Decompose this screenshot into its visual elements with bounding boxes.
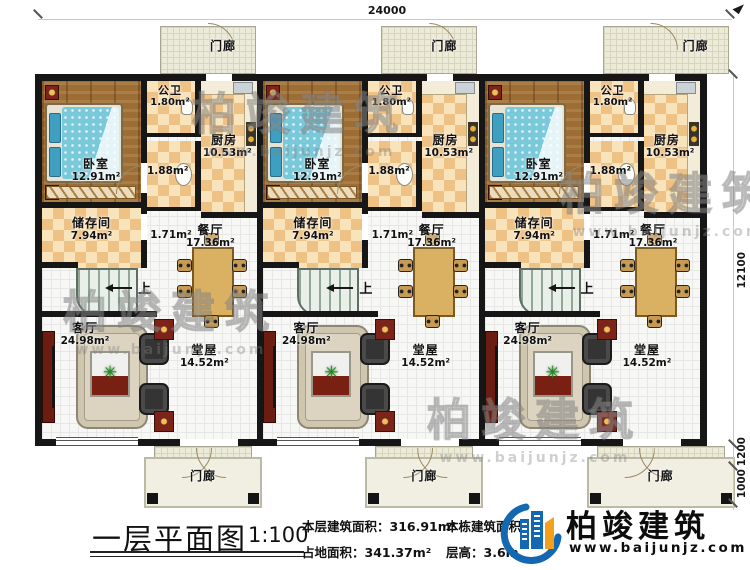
room-label-storage: 储存间 7.94m² xyxy=(485,216,584,243)
dining-table xyxy=(413,247,455,317)
stat-label: 层高： xyxy=(446,545,484,560)
kitchen-door-gap xyxy=(427,74,453,81)
nightstand xyxy=(45,85,59,100)
storage-room: 储存间 7.94m² xyxy=(485,208,590,268)
dining-chair xyxy=(232,285,247,298)
storage-area: 7.94m² xyxy=(485,230,584,243)
room-label-bedroom: 卧室 12.91m² xyxy=(501,157,577,184)
house-unit: 门廊 门廊 卧室 12. xyxy=(485,81,700,439)
dining-chair xyxy=(425,315,440,328)
hall-name: 堂屋 xyxy=(165,343,243,357)
main-building: 门廊 门廊 卧室 12. xyxy=(35,74,707,446)
plant-icon: ✳ xyxy=(313,363,349,383)
room-label-dining: 餐厅 17.36m² xyxy=(614,223,692,250)
room-label-kitchen: 厨房 10.53m² xyxy=(424,133,466,160)
kitchen-door-gap xyxy=(206,74,232,81)
company-logo: 柏竣建筑 www.baijunjz.com xyxy=(496,499,750,567)
stairs-up-label: 上 xyxy=(581,278,594,297)
bottom-porch-name: 门廊 xyxy=(598,469,724,483)
porch-column xyxy=(469,493,480,504)
kitchen-name: 厨房 xyxy=(424,133,466,147)
top-porch-name: 门廊 xyxy=(193,39,253,53)
kitchen-door-gap xyxy=(649,74,675,81)
hall-area: 14.52m² xyxy=(608,357,686,370)
kitchen-name: 厨房 xyxy=(203,133,245,147)
coffee-table: ✳ xyxy=(311,351,351,397)
plant-icon: ✳ xyxy=(535,363,571,383)
end-table xyxy=(375,411,395,432)
dining-area: 17.36m² xyxy=(171,237,249,250)
end-table xyxy=(375,319,395,340)
room-label-toilet: 公卫 1.80m² xyxy=(590,84,636,109)
living-area: 24.98m² xyxy=(273,335,339,348)
living-area: 24.98m² xyxy=(495,335,561,348)
living-name: 客厅 xyxy=(52,321,118,335)
stat-footprint-area: 占地面积：341.37m² xyxy=(302,540,456,566)
dining-chair xyxy=(177,259,192,272)
end-table xyxy=(154,319,174,340)
units-row: 门廊 门廊 卧室 12. xyxy=(42,81,700,439)
dining-chair xyxy=(398,259,413,272)
house-unit: 门廊 门廊 卧室 12. xyxy=(42,81,257,439)
wash-area: 1.88m² xyxy=(590,165,630,178)
porch-column xyxy=(248,493,259,504)
room-label-dining: 餐厅 17.36m² xyxy=(393,223,471,250)
room-label-storage: 储存间 7.94m² xyxy=(263,216,362,243)
wall-segment xyxy=(485,311,600,317)
stairs-up-label: 上 xyxy=(359,278,372,297)
toilet-area: 1.80m² xyxy=(368,97,414,109)
room-label-wash: 1.88m² xyxy=(147,165,187,178)
dining-chair xyxy=(620,285,635,298)
toilet-name: 公卫 xyxy=(590,84,636,97)
dining-table xyxy=(192,247,234,317)
front-door-gap xyxy=(401,439,459,446)
hall-name: 堂屋 xyxy=(608,343,686,357)
logo-url: www.baijunjz.com xyxy=(569,540,747,556)
bedroom-area: 12.91m² xyxy=(501,171,577,184)
room-label-living: 客厅 24.98m² xyxy=(495,321,561,348)
bottom-porch-name: 门廊 xyxy=(376,469,472,483)
top-porch-name: 门廊 xyxy=(666,39,726,53)
kitchen-sink xyxy=(676,82,696,94)
logo-building-icon xyxy=(496,503,564,565)
kitchen-area: 10.53m² xyxy=(203,147,245,160)
bottom-porch-name: 门廊 xyxy=(155,469,251,483)
end-table xyxy=(597,411,617,432)
dining-chair xyxy=(177,285,192,298)
toilet-room: 公卫 1.80m² xyxy=(368,81,422,137)
end-table xyxy=(154,411,174,432)
nightstand xyxy=(488,85,502,100)
room-label-kitchen: 厨房 10.53m² xyxy=(646,133,688,160)
room-label-bottom-porch: 门廊 xyxy=(155,469,251,483)
storage-room: 储存间 7.94m² xyxy=(42,208,147,268)
front-door-gap xyxy=(623,439,681,446)
wash-area: 1.88m² xyxy=(147,165,187,178)
living-area: 24.98m² xyxy=(52,335,118,348)
toilet-name: 公卫 xyxy=(368,84,414,97)
kitchen-name: 厨房 xyxy=(646,133,688,147)
kitchen-counter xyxy=(201,81,257,95)
pillow xyxy=(270,113,282,143)
kitchen-counter xyxy=(422,81,478,95)
stat-value: 341.37m² xyxy=(365,545,432,560)
top-porch: 门廊 xyxy=(603,26,729,74)
room-label-toilet: 公卫 1.80m² xyxy=(147,84,193,109)
stairs-direction-arrow xyxy=(333,287,353,289)
room-label-wash: 1.88m² xyxy=(368,165,408,178)
stairs xyxy=(519,268,581,316)
dining-name: 餐厅 xyxy=(393,223,471,237)
wall-segment xyxy=(263,262,299,268)
living-window xyxy=(277,437,359,446)
kitchen-area: 10.53m² xyxy=(646,147,688,160)
wall-segment xyxy=(485,262,521,268)
toilet-room: 公卫 1.80m² xyxy=(147,81,201,137)
living-window xyxy=(499,437,581,446)
pillow xyxy=(492,113,504,143)
stair-zone: 上 xyxy=(263,268,378,317)
stat-label: 占地面积： xyxy=(302,545,365,560)
stairs-up-label: 上 xyxy=(138,278,151,297)
dining-name: 餐厅 xyxy=(614,223,692,237)
room-label-hall: 堂屋 14.52m² xyxy=(608,343,686,370)
living-name: 客厅 xyxy=(273,321,339,335)
tv-screen xyxy=(52,346,55,408)
room-label-bottom-porch: 门廊 xyxy=(598,469,724,483)
dining-chair xyxy=(232,259,247,272)
nightstand xyxy=(266,85,280,100)
stove xyxy=(468,122,478,146)
storage-area: 7.94m² xyxy=(42,230,141,243)
kitchen-sink xyxy=(233,82,253,94)
hall-area: 14.52m² xyxy=(165,357,243,370)
stats-column-1: 本层建筑面积：316.91m² 占地面积：341.37m² xyxy=(302,514,456,566)
coffee-table: ✳ xyxy=(533,351,573,397)
kitchen: 厨房 10.53m² xyxy=(201,81,257,218)
room-label-hall: 堂屋 14.52m² xyxy=(165,343,243,370)
floor-plan-image: 24000 12100 1200 1000 门廊 门廊 xyxy=(0,0,750,570)
living-window xyxy=(56,437,138,446)
room-label-toilet: 公卫 1.80m² xyxy=(368,84,414,109)
wash-room: 1.88m² xyxy=(147,141,201,211)
stove xyxy=(246,122,256,146)
bedroom-area: 12.91m² xyxy=(58,171,134,184)
bottom-porch: 门廊 xyxy=(597,446,725,496)
room-label-hall: 堂屋 14.52m² xyxy=(387,343,465,370)
dining-chair xyxy=(647,315,662,328)
top-dimension-line xyxy=(38,19,732,20)
dining-chair xyxy=(675,259,690,272)
wall-segment xyxy=(42,311,157,317)
stat-label: 本层建筑面积： xyxy=(302,519,390,534)
wash-area: 1.88m² xyxy=(368,165,408,178)
storage-name: 储存间 xyxy=(485,216,584,230)
storage-room: 储存间 7.94m² xyxy=(263,208,368,268)
room-label-storage: 储存间 7.94m² xyxy=(42,216,141,243)
toilet-room: 公卫 1.80m² xyxy=(590,81,644,137)
wall-segment xyxy=(263,311,378,317)
plan-scale: 1:100 xyxy=(248,523,309,547)
bottom-porch: 门廊 xyxy=(154,446,252,496)
dining-table xyxy=(635,247,677,317)
toilet-name: 公卫 xyxy=(147,84,193,97)
pillow xyxy=(49,113,61,143)
dining-chair xyxy=(204,315,219,328)
top-porch: 门廊 xyxy=(381,26,477,74)
porch-column xyxy=(368,493,379,504)
stair-zone: 上 xyxy=(42,268,157,317)
stair-zone: 上 xyxy=(485,268,600,317)
dining-name: 餐厅 xyxy=(171,223,249,237)
room-label-living: 客厅 24.98m² xyxy=(273,321,339,348)
dining-chair xyxy=(620,259,635,272)
stairs xyxy=(76,268,138,316)
dining-area: 17.36m² xyxy=(393,237,471,250)
stairs-direction-arrow xyxy=(555,287,575,289)
dining-area: 17.36m² xyxy=(614,237,692,250)
room-label-wash: 1.88m² xyxy=(590,165,630,178)
room-label-bedroom: 卧室 12.91m² xyxy=(279,157,355,184)
bedroom-name: 卧室 xyxy=(58,157,134,171)
room-label-bedroom: 卧室 12.91m² xyxy=(58,157,134,184)
coffee-table: ✳ xyxy=(90,351,130,397)
room-label-top-porch: 门廊 xyxy=(666,39,726,53)
kitchen: 厨房 10.53m² xyxy=(422,81,478,218)
room-label-living: 客厅 24.98m² xyxy=(52,321,118,348)
tv-screen xyxy=(495,346,498,408)
room-label-kitchen: 厨房 10.53m² xyxy=(203,133,245,160)
porch-column xyxy=(147,493,158,504)
end-table xyxy=(597,319,617,340)
stove xyxy=(689,122,699,146)
house-unit: 门廊 门廊 卧室 12. xyxy=(263,81,478,439)
dining-chair xyxy=(453,259,468,272)
kitchen-area: 10.53m² xyxy=(424,147,466,160)
storage-name: 储存间 xyxy=(263,216,362,230)
stairs-direction-arrow xyxy=(112,287,132,289)
storage-name: 储存间 xyxy=(42,216,141,230)
bedroom-name: 卧室 xyxy=(501,157,577,171)
front-door-gap xyxy=(180,439,238,446)
living-name: 客厅 xyxy=(495,321,561,335)
title-underline xyxy=(90,551,304,553)
title-underline-thin xyxy=(90,556,304,557)
top-porch: 门廊 xyxy=(160,26,256,74)
kitchen: 厨房 10.53m² xyxy=(644,81,700,218)
dining-chair xyxy=(453,285,468,298)
dining-chair xyxy=(398,285,413,298)
stat-floor-area: 本层建筑面积：316.91m² xyxy=(302,514,456,540)
room-label-top-porch: 门廊 xyxy=(414,39,474,53)
bedroom-name: 卧室 xyxy=(279,157,355,171)
right-dimension-label: 12100 xyxy=(736,252,748,289)
wash-room: 1.88m² xyxy=(368,141,422,211)
stairs xyxy=(297,268,359,316)
hall-area: 14.52m² xyxy=(387,357,465,370)
top-porch-name: 门廊 xyxy=(414,39,474,53)
room-label-dining: 餐厅 17.36m² xyxy=(171,223,249,250)
tv-screen xyxy=(273,346,276,408)
top-dimension-label: 24000 xyxy=(352,4,422,17)
cursor-arrow-icon xyxy=(732,1,745,15)
dimension-tick xyxy=(33,9,43,19)
porch-depth-label: 1200 xyxy=(736,437,748,466)
dining-chair xyxy=(675,285,690,298)
storage-area: 7.94m² xyxy=(263,230,362,243)
toilet-area: 1.80m² xyxy=(590,97,636,109)
kitchen-counter xyxy=(644,81,700,95)
room-label-top-porch: 门廊 xyxy=(193,39,253,53)
bedroom-area: 12.91m² xyxy=(279,171,355,184)
plant-icon: ✳ xyxy=(92,363,128,383)
toilet-area: 1.80m² xyxy=(147,97,193,109)
kitchen-sink xyxy=(455,82,475,94)
bottom-porch: 门廊 xyxy=(375,446,473,496)
hall-name: 堂屋 xyxy=(387,343,465,357)
wall-segment xyxy=(42,262,78,268)
step-depth-label: 1000 xyxy=(736,469,748,498)
wash-room: 1.88m² xyxy=(590,141,644,211)
room-label-bottom-porch: 门廊 xyxy=(376,469,472,483)
